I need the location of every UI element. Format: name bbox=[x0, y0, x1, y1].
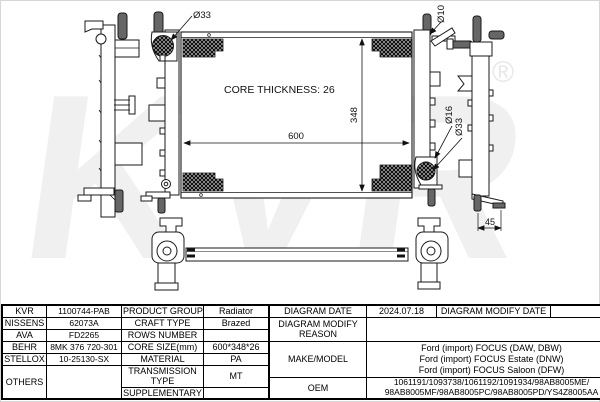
attr-value: 600*348*26 bbox=[204, 341, 270, 353]
radiator-technical-drawing: KVR ® 600 348 CORE THICKNESS: 26 bbox=[0, 0, 600, 304]
make-model-value: Ford (import) FOCUS (DAW, DBW) Ford (imp… bbox=[367, 341, 600, 377]
attr-value bbox=[204, 329, 270, 341]
diagram-date-label: DIAGRAM DATE bbox=[269, 305, 367, 317]
spec-table-left: KVR 1100744-PAB PRODUCT GROUP Radiator N… bbox=[1, 304, 270, 400]
svg-text:®: ® bbox=[492, 56, 514, 89]
attr-value: PA bbox=[204, 353, 270, 365]
part-number-cell: FD2265 bbox=[47, 329, 122, 341]
modify-date-label: DIAGRAM MODIFY DATE bbox=[437, 305, 551, 317]
modify-reason-label: DIAGRAM MODIFY REASON bbox=[269, 317, 367, 341]
radiator-front-view bbox=[181, 32, 412, 198]
svg-text:Ø33: Ø33 bbox=[454, 118, 465, 136]
table-row: BEHR 8MK 376 720-301 CORE SIZE(mm) 600*3… bbox=[2, 341, 269, 353]
table-row: STELLOX 10-25130-SX MATERIAL PA bbox=[2, 353, 269, 365]
brand-cell: KVR bbox=[2, 305, 47, 317]
radiator-spec-sheet: KVR ® 600 348 CORE THICKNESS: 26 bbox=[0, 0, 600, 402]
part-number-cell bbox=[47, 365, 122, 399]
oem-line: 98AB8005MF/98AB8005PC/98AB8005PD/YS4Z800… bbox=[368, 388, 600, 398]
diagram-date-value: 2024.07.18 bbox=[367, 305, 437, 317]
table-row: MAKE/MODEL Ford (import) FOCUS (DAW, DBW… bbox=[269, 341, 600, 377]
attr-label: CORE SIZE(mm) bbox=[122, 341, 204, 353]
attr-label: ROWS NUMBER bbox=[122, 329, 204, 341]
part-number-cell: 62073A bbox=[47, 317, 122, 329]
part-number-cell: 8MK 376 720-301 bbox=[47, 341, 122, 353]
table-row: NISSENS 62073A CRAFT TYPE Brazed bbox=[2, 317, 269, 329]
make-model-line: Ford (import) FOCUS Saloon (DFW) bbox=[368, 365, 600, 376]
svg-text:348: 348 bbox=[349, 107, 360, 123]
brand-cell-others: OTHERS bbox=[2, 365, 47, 399]
oem-value: 1061191/1093738/1061192/1091934/98AB8005… bbox=[367, 377, 600, 399]
brand-cell: NISSENS bbox=[2, 317, 47, 329]
attr-label: PRODUCT GROUP bbox=[122, 305, 204, 317]
label-core-thickness: CORE THICKNESS: 26 bbox=[224, 84, 335, 96]
port-label-d10: Ø10 bbox=[430, 5, 447, 34]
svg-text:45: 45 bbox=[485, 217, 495, 227]
attr-label-transmission: TRANSMISSION TYPE bbox=[122, 365, 204, 387]
make-model-label: MAKE/MODEL bbox=[269, 341, 367, 377]
attr-value: Radiator bbox=[204, 305, 270, 317]
attr-label: MATERIAL bbox=[122, 353, 204, 365]
part-number-cell: 1100744-PAB bbox=[47, 305, 122, 317]
attr-value-supplementary bbox=[204, 387, 270, 399]
brand-cell: STELLOX bbox=[2, 353, 47, 365]
table-row: OEM 1061191/1093738/1061192/1091934/98AB… bbox=[269, 377, 600, 399]
brand-cell: AVA bbox=[2, 329, 47, 341]
svg-text:Ø10: Ø10 bbox=[436, 5, 447, 23]
table-row: DIAGRAM MODIFY REASON bbox=[269, 317, 600, 341]
oem-label: OEM bbox=[269, 377, 367, 399]
attr-value: Brazed bbox=[204, 317, 270, 329]
attr-label: CRAFT TYPE bbox=[122, 317, 204, 329]
table-row: KVR 1100744-PAB PRODUCT GROUP Radiator bbox=[2, 305, 269, 317]
part-number-cell: 10-25130-SX bbox=[47, 353, 122, 365]
spec-table-right: DIAGRAM DATE 2024.07.18 DIAGRAM MODIFY D… bbox=[268, 304, 600, 400]
spec-tables: KVR 1100744-PAB PRODUCT GROUP Radiator N… bbox=[1, 304, 600, 400]
svg-text:600: 600 bbox=[288, 131, 304, 142]
make-model-line: Ford (import) FOCUS Estate (DNW) bbox=[368, 354, 600, 365]
modify-date-value bbox=[551, 305, 600, 317]
make-model-line: Ford (import) FOCUS (DAW, DBW) bbox=[368, 343, 600, 354]
attr-value-transmission: MT bbox=[204, 365, 270, 387]
table-row: DIAGRAM DATE 2024.07.18 DIAGRAM MODIFY D… bbox=[269, 305, 600, 317]
svg-text:Ø33: Ø33 bbox=[193, 10, 211, 21]
modify-reason-value bbox=[367, 317, 600, 341]
table-row: AVA FD2265 ROWS NUMBER bbox=[2, 329, 269, 341]
table-row: OTHERS TRANSMISSION TYPE MT bbox=[2, 365, 269, 387]
attr-label-supplementary: SUPPLEMENTARY bbox=[122, 387, 204, 399]
brand-cell: BEHR bbox=[2, 341, 47, 353]
